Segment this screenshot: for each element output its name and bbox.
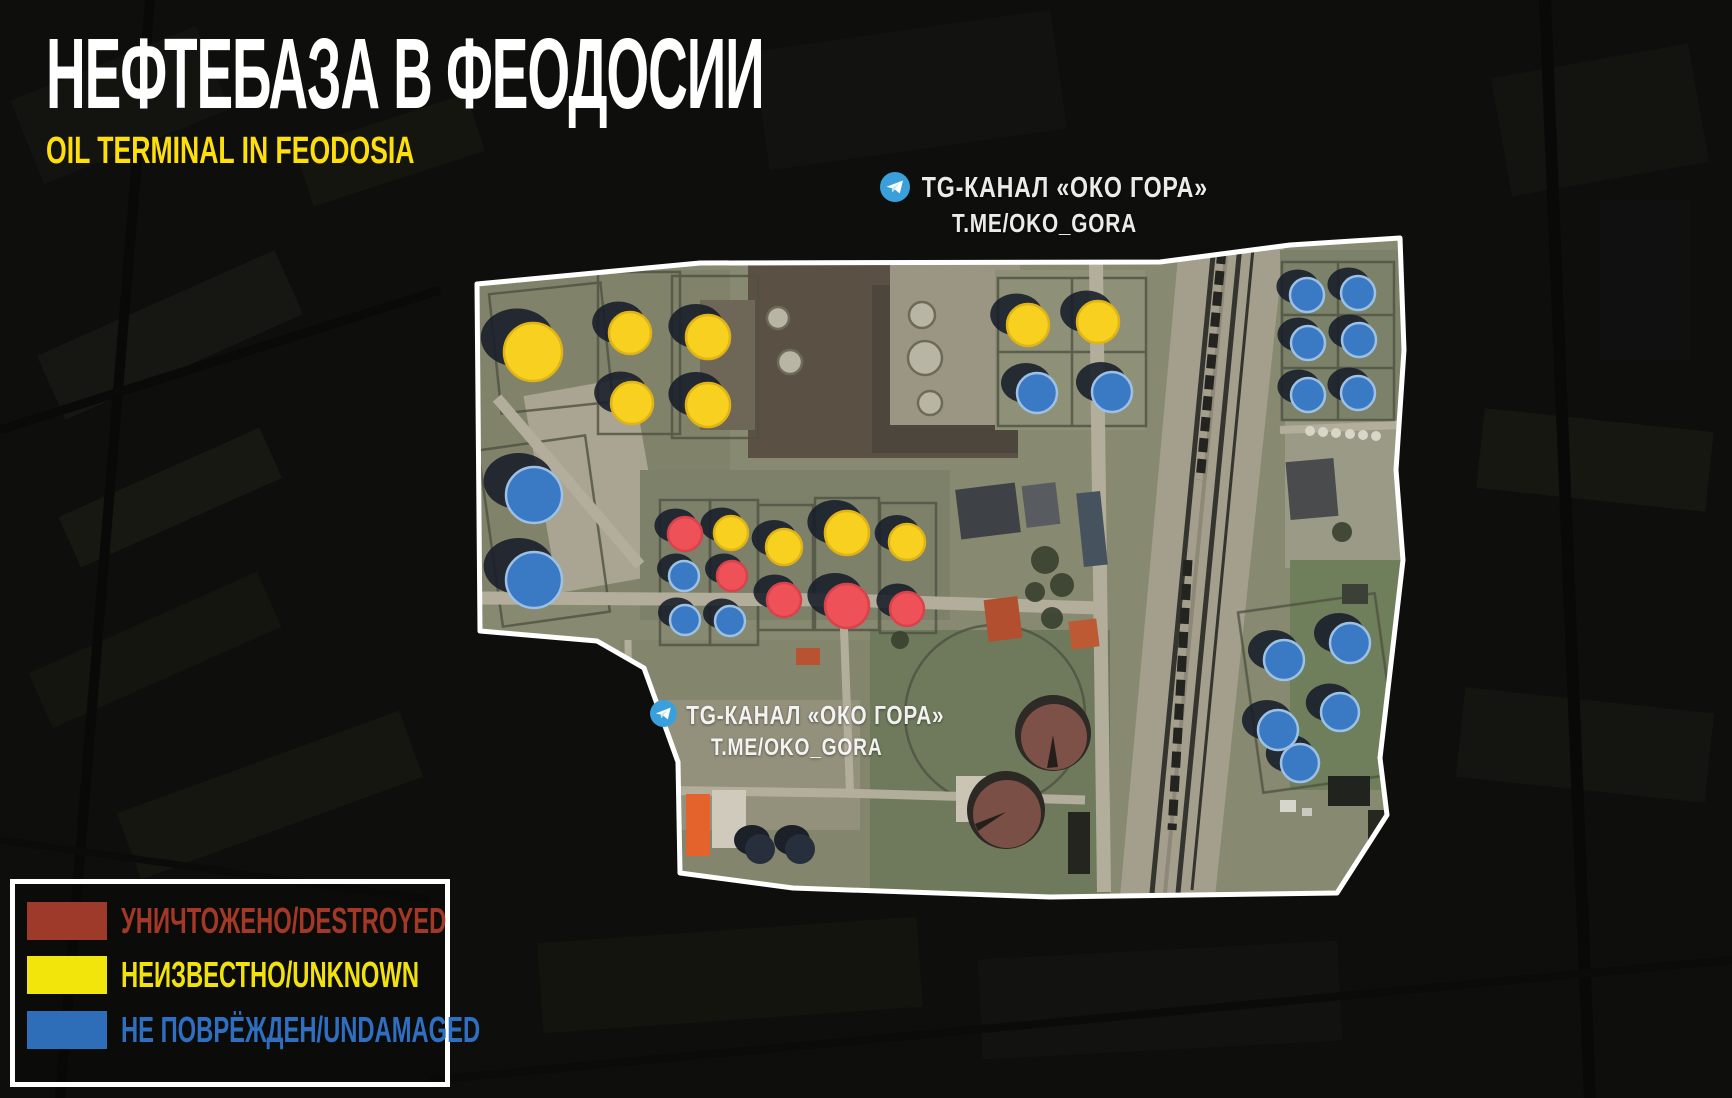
tank-marker-undamaged [506, 467, 562, 523]
tank-marker-destroyed [717, 561, 747, 591]
tank-marker-unknown [714, 516, 748, 550]
tank-marker-undamaged [1092, 372, 1132, 412]
tank-marker-undamaged [1330, 623, 1370, 663]
tank-marker-unknown [504, 323, 562, 381]
legend-row-destroyed: УНИЧТОЖЕНО/DESTROYED [27, 900, 614, 942]
tank-marker-destroyed [767, 583, 801, 617]
title-block: НЕФТЕБАЗА В ФЕОДОСИИ OIL TERMINAL IN FEO… [46, 22, 1732, 170]
legend-row-undamaged: НЕ ПОВРЁЖДЕН/UNDAMAGED [27, 1009, 665, 1051]
tank-marker-undamaged [1258, 710, 1298, 750]
tank-marker-undamaged [1321, 693, 1359, 731]
watermark-channel: TG-КАНАЛ «ОКО ГОРА» [686, 700, 944, 731]
tank-marker-undamaged [1281, 744, 1319, 782]
page-subtitle: OIL TERMINAL IN FEODOSIA [46, 132, 414, 170]
tank-marker-undamaged [1341, 376, 1375, 410]
legend-swatch-unknown [27, 956, 107, 994]
watermark-handle: T.ME/OKO_GORA [711, 734, 882, 762]
tank-marker-unknown [686, 315, 730, 359]
tank-marker-unknown [609, 312, 651, 354]
watermark-mid: TG-КАНАЛ «ОКО ГОРА» T.ME/OKO_GORA [650, 700, 980, 762]
tank-marker-unknown [766, 529, 802, 565]
legend-swatch-destroyed [27, 902, 107, 940]
infographic-canvas: НЕФТЕБАЗА В ФЕОДОСИИ OIL TERMINAL IN FEO… [0, 0, 1732, 1098]
tank-marker-undamaged [670, 605, 700, 635]
legend-label-destroyed: УНИЧТОЖЕНО/DESTROYED [121, 903, 614, 939]
legend-swatch-undamaged [27, 1011, 107, 1049]
tank-marker-undamaged [1290, 278, 1324, 312]
tank-marker-unknown [1007, 304, 1049, 346]
tank-marker-undamaged [669, 561, 699, 591]
watermark-top: TG-КАНАЛ «ОКО ГОРА» T.ME/OKO_GORA [880, 172, 1250, 239]
tank-marker-undamaged [715, 606, 745, 636]
legend-label-undamaged: НЕ ПОВРЁЖДЕН/UNDAMAGED [121, 1012, 665, 1048]
tank-marker-destroyed [890, 592, 924, 626]
watermark-handle: T.ME/OKO_GORA [952, 208, 1137, 239]
tank-marker-undamaged [1264, 640, 1304, 680]
tank-marker-destroyed [668, 517, 702, 551]
tank-marker-undamaged [1017, 373, 1057, 413]
tank-marker-undamaged [1342, 323, 1376, 357]
watermark-channel: TG-КАНАЛ «ОКО ГОРА» [922, 172, 1208, 205]
tank-marker-unknown [611, 382, 653, 424]
tank-marker-unknown [686, 383, 730, 427]
tank-marker-unknown [825, 511, 869, 555]
tank-marker-undamaged [1291, 326, 1325, 360]
tank-marker-destroyed [825, 584, 869, 628]
legend-row-unknown: НЕИЗВЕСТНО/UNKNOWN [27, 954, 573, 996]
legend-label-unknown: НЕИЗВЕСТНО/UNKNOWN [121, 957, 573, 993]
tank-marker-undamaged [506, 552, 562, 608]
legend: УНИЧТОЖЕНО/DESTROYEDНЕИЗВЕСТНО/UNKNOWNНЕ… [10, 879, 450, 1087]
tank-marker-unknown [889, 524, 925, 560]
tank-marker-undamaged [1341, 276, 1375, 310]
tank-marker-undamaged [1291, 378, 1325, 412]
tank-marker-unknown [1077, 301, 1119, 343]
page-title: НЕФТЕБАЗА В ФЕОДОСИИ [46, 22, 764, 126]
